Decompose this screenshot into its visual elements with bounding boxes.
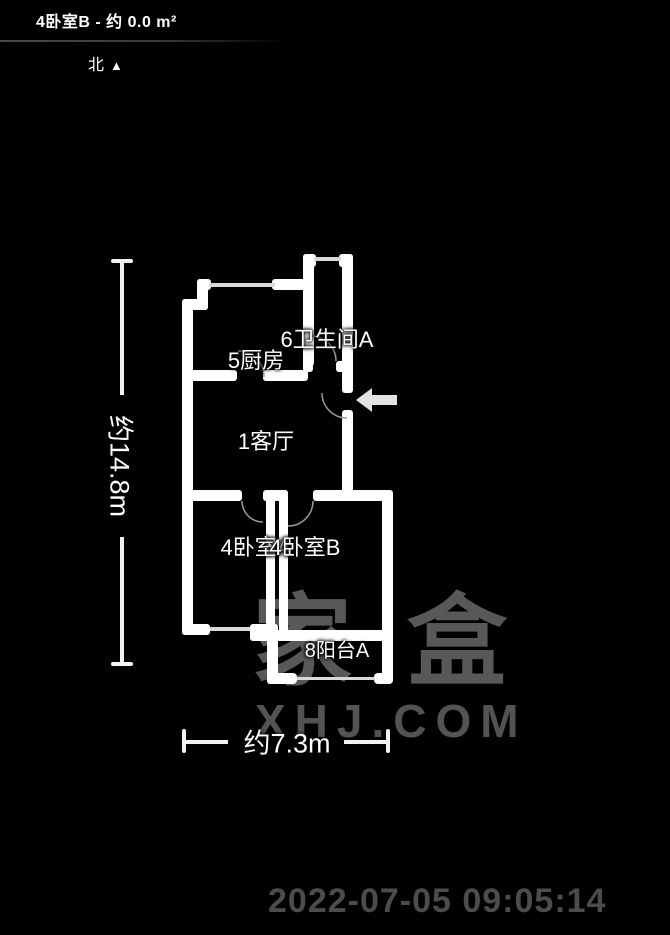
bedroom-a-door-arc — [242, 501, 263, 522]
hdim-line-right — [344, 740, 388, 744]
hdim-cap-right — [386, 729, 390, 753]
entrance-arrow-icon — [356, 388, 397, 412]
room-label-balcony: 8阳台A — [305, 634, 369, 663]
horizontal-dimension-label: 约7.3m — [243, 722, 330, 761]
hdim-cap-left — [182, 729, 186, 753]
floorplan-screen: 4卧室B - 约 0.0 m² 北▲ 家盒 XHJ.COM — [0, 0, 670, 935]
floorplan-drawing — [0, 0, 670, 935]
vdim-line-lower — [120, 537, 124, 664]
vdim-line-upper — [120, 259, 124, 395]
room-label-bathroom: 6卫生间A — [281, 322, 374, 354]
bedroom-b-door-arc — [288, 501, 313, 526]
room-label-kitchen: 5厨房 — [228, 343, 284, 375]
walls — [182, 254, 393, 684]
room-label-bedroom-b: 4卧室B — [270, 530, 341, 562]
room-label-living-room: 1客厅 — [238, 424, 294, 456]
hdim-line-left — [186, 740, 228, 744]
vertical-dimension-label: 约14.8m — [103, 415, 142, 517]
vdim-cap-bottom — [111, 662, 133, 666]
